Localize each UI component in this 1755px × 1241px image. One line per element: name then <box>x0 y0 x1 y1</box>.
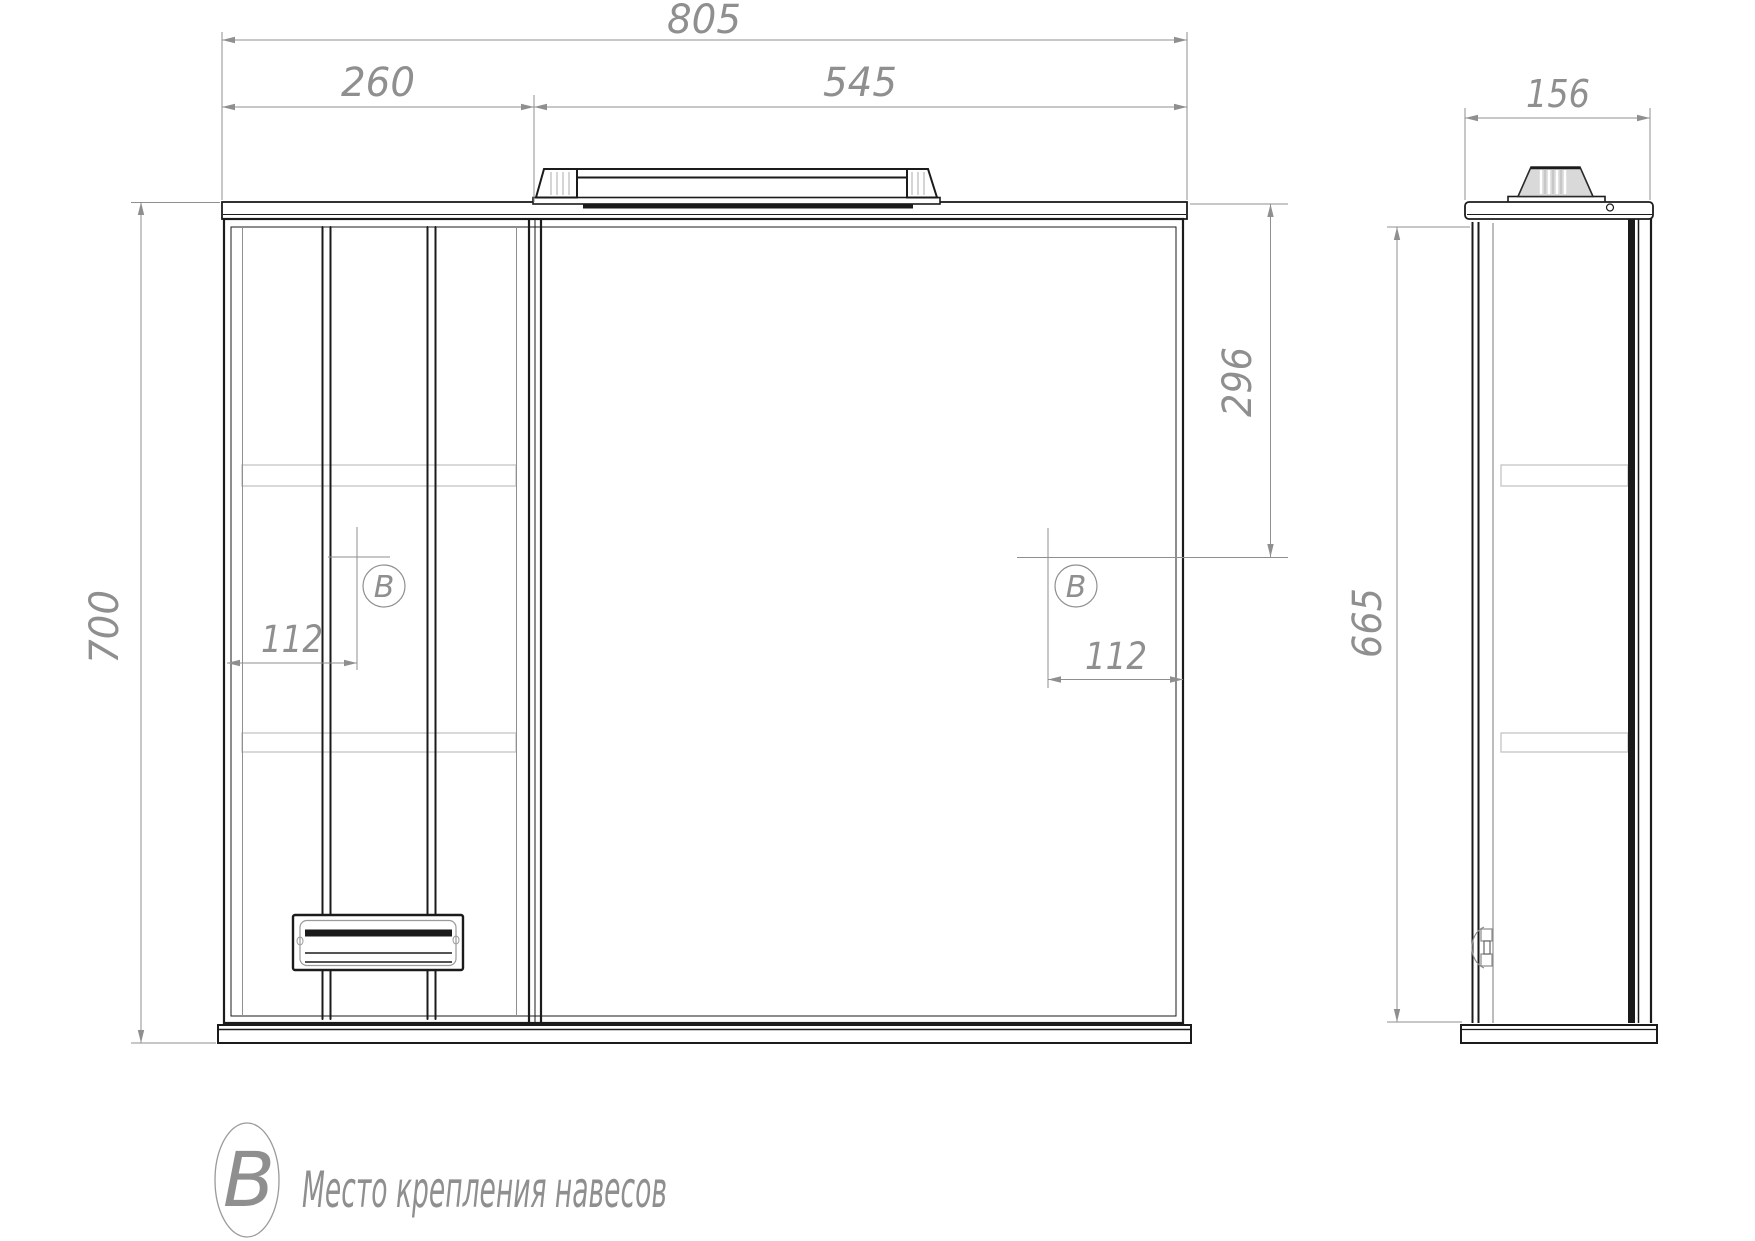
mirror-cabinet-drawing: 805 260 545 700 <box>0 0 1755 1241</box>
side-mirror-panel <box>1628 219 1635 1023</box>
lamp-base <box>533 198 940 205</box>
dim-label-left-width: 260 <box>341 60 415 106</box>
front-body <box>224 219 1183 1023</box>
cable-hole <box>1607 204 1614 211</box>
hinge-pin <box>1484 941 1490 954</box>
left-shelf-upper <box>242 465 516 486</box>
side-shelf-lower <box>1501 733 1628 752</box>
legend-marker-letter: B <box>223 1135 275 1224</box>
side-lamp-body <box>1518 167 1593 197</box>
handle-inner-plate <box>300 921 456 966</box>
front-view <box>218 169 1191 1043</box>
lamp-tube <box>577 169 907 178</box>
left-shelf-lower <box>242 733 516 752</box>
dim-mirror-width: 545 <box>534 60 1187 110</box>
dim-label-depth: 156 <box>1526 72 1590 116</box>
dim-side-height: 665 <box>1345 227 1470 1022</box>
front-lamp <box>533 169 940 209</box>
dim-mount-top-offset: 296 <box>1190 204 1288 557</box>
dim-label-side-height: 665 <box>1345 588 1391 658</box>
front-bottom-board <box>218 1025 1191 1043</box>
legend: B Место крепления навесов <box>215 1123 667 1237</box>
handle-grip-bar <box>305 930 452 937</box>
legend-label: Место крепления навесов <box>302 1161 667 1219</box>
hinge-block <box>1481 954 1492 966</box>
marker-letter: B <box>374 570 395 605</box>
hinge-block <box>1481 929 1492 941</box>
dim-height: 700 <box>82 202 220 1043</box>
technical-drawing-page: 805 260 545 700 <box>0 0 1755 1241</box>
side-shelf-upper <box>1501 465 1628 486</box>
lamp-base-bar <box>583 204 913 209</box>
side-view <box>1461 167 1657 1043</box>
marker-letter: B <box>1066 570 1087 605</box>
side-lamp <box>1508 167 1605 203</box>
dim-left-width: 260 <box>222 60 534 202</box>
dim-label-mount-left-offset: 112 <box>261 618 323 661</box>
dim-label-mount-top-offset: 296 <box>1215 347 1261 417</box>
side-top-board <box>1465 202 1653 219</box>
dim-label-mount-right-offset: 112 <box>1085 635 1147 678</box>
hinge <box>1472 927 1492 968</box>
dim-label-total-width: 805 <box>667 0 741 43</box>
dim-label-height: 700 <box>82 590 128 664</box>
dim-label-mirror-width: 545 <box>823 60 897 106</box>
side-bottom-board <box>1461 1025 1657 1043</box>
door-handle <box>293 915 463 970</box>
